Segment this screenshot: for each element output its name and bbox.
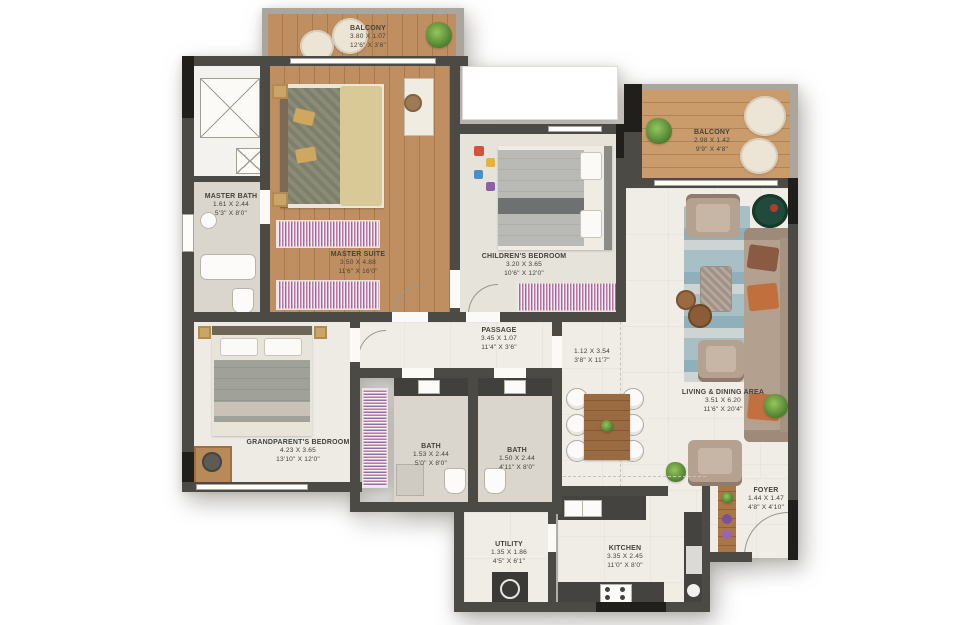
wall	[702, 486, 710, 612]
wall	[182, 56, 194, 492]
room-label-balcony-top-right: BALCONY 2.98 X 1.42 9'9" X 4'8"	[664, 128, 760, 155]
room-dim-imperial: 11'6" X 16'0"	[298, 268, 418, 277]
dining-table	[584, 394, 630, 460]
room-name: MASTER BATH	[196, 192, 266, 201]
toy	[486, 158, 495, 167]
bed-headboard	[212, 326, 312, 335]
room-dim-imperial: 5'0" X 8'0"	[396, 460, 466, 469]
parapet-wall	[790, 84, 798, 182]
room-dim-imperial: 13'10" X 12'0"	[228, 456, 368, 465]
room-dim-metric: 3.50 X 4.88	[298, 259, 418, 268]
side-table	[752, 194, 788, 228]
wall	[450, 124, 634, 134]
room-label-master-bath: MASTER BATH 1.61 X 2.44 5'3" X 8'0"	[196, 192, 266, 219]
prep-sink	[687, 584, 700, 597]
room-label-foyer: FOYER 1.44 X 1.47 4'8" X 4'10"	[736, 486, 796, 513]
wall	[358, 368, 556, 378]
room-name: BATH	[482, 446, 552, 455]
bed-throw	[214, 402, 310, 416]
room-dim-metric: 4.23 X 3.65	[228, 447, 368, 456]
room-dim-imperial: 11'4" X 3'6"	[450, 344, 548, 353]
bath-sink	[418, 380, 440, 394]
table-centerpiece	[601, 420, 613, 432]
flower-decor	[722, 514, 732, 524]
wardrobe	[516, 282, 618, 312]
bathtub	[200, 254, 256, 280]
room-dim-metric: 1.35 X 1.86	[466, 549, 552, 558]
room-name: FOYER	[736, 486, 796, 495]
room-name: KITCHEN	[578, 544, 672, 553]
wardrobe	[276, 220, 380, 248]
washing-machine	[492, 572, 528, 606]
room-dim-metric: 3.80 X 1.07	[318, 33, 418, 42]
room-name: LIVING & DINING AREA	[656, 388, 790, 397]
kitchen-sink	[564, 500, 602, 517]
room-dim-metric: 1.53 X 2.44	[396, 451, 466, 460]
room-dim-imperial: 10'6" X 12'0"	[464, 270, 584, 279]
room-dim-imperial: 9'9" X 4'8"	[664, 146, 760, 155]
room-dim-metric: 1.44 X 1.47	[736, 495, 796, 504]
armchair-seat	[696, 204, 730, 232]
door-opening	[392, 312, 428, 322]
nightstand	[272, 84, 288, 99]
sink-divider	[582, 500, 583, 517]
bath-sink	[504, 380, 526, 394]
room-dim-imperial: 4'11" X 8'0"	[482, 464, 552, 473]
coffee-table	[688, 304, 712, 328]
plant-icon	[666, 462, 686, 482]
room-dim-imperial: 3'8" X 11'7"	[556, 357, 628, 366]
foyer-console	[718, 486, 736, 554]
room-dim-metric: 3.45 X 1.07	[450, 335, 548, 344]
bed-pillow	[580, 152, 602, 180]
bed-pillow	[580, 210, 602, 238]
toilet	[232, 288, 254, 314]
room-label-corridor: 1.12 X 3.54 3'8" X 11'7"	[556, 348, 628, 365]
flower-decor	[722, 530, 732, 539]
wall	[468, 378, 478, 504]
room-name: CHILDREN'S BEDROOM	[464, 252, 584, 261]
armchair-seat	[706, 346, 736, 372]
desk-chair	[404, 94, 422, 112]
floorplan: BALCONY 3.80 X 1.07 12'6" X 3'6" MASTER …	[0, 0, 957, 625]
burner	[620, 595, 625, 600]
room-label-bath-2: BATH 1.50 X 2.44 4'11" X 8'0"	[482, 446, 552, 473]
armchair-seat	[698, 448, 732, 474]
room-name: UTILITY	[466, 540, 552, 549]
sliding-door	[654, 180, 778, 186]
window	[182, 214, 194, 252]
service-duct	[462, 66, 618, 120]
master-bed	[280, 84, 384, 208]
wall-column	[182, 56, 194, 118]
sofa-pillow	[747, 283, 780, 312]
parapet-wall	[638, 84, 796, 90]
room-name: GRANDPARENT'S BEDROOM	[228, 438, 368, 447]
door-opening	[466, 312, 500, 322]
room-dim-metric: 1.50 X 2.44	[482, 455, 552, 464]
room-name: BALCONY	[318, 24, 418, 33]
room-dim-imperial: 4'8" X 4'10"	[736, 504, 796, 513]
closet-box	[200, 78, 260, 138]
room-dim-imperial: 11'0" X 8'0"	[578, 562, 672, 571]
door-opening	[350, 328, 360, 362]
wall	[556, 486, 668, 496]
room-label-balcony-top-left: BALCONY 3.80 X 1.07 12'6" X 3'6"	[318, 24, 418, 51]
room-dim-metric: 1.61 X 2.44	[196, 201, 266, 210]
room-label-utility: UTILITY 1.35 X 1.86 4'5" X 6'1"	[466, 540, 552, 567]
door-opening	[450, 270, 460, 308]
childrens-bed	[498, 146, 612, 250]
room-dim-imperial: 11'6" X 20'4"	[656, 406, 790, 415]
washing-machine-door	[500, 579, 520, 599]
room-name: BALCONY	[664, 128, 760, 137]
room-dim-imperial: 5'3" X 8'0"	[196, 210, 266, 219]
nightstand	[198, 326, 211, 339]
plant-icon	[722, 492, 733, 503]
burner	[620, 587, 625, 592]
fridge	[686, 546, 702, 574]
room-label-kitchen: KITCHEN 3.35 X 2.45 11'0" X 8'0"	[578, 544, 672, 571]
room-label-bath-1: BATH 1.53 X 2.44 5'0" X 8'0"	[396, 442, 466, 469]
stool	[202, 452, 222, 472]
wall	[702, 552, 752, 562]
nightstand	[314, 326, 327, 339]
room-dim-metric: 3.35 X 2.45	[578, 553, 672, 562]
bed-pillow	[264, 338, 302, 356]
window	[548, 126, 602, 132]
room-dim-metric: 2.98 X 1.42	[664, 137, 760, 146]
wall	[194, 176, 268, 182]
sliding-door	[290, 58, 436, 64]
sofa-pillow	[746, 244, 779, 272]
room-label-childrens-bedroom: CHILDREN'S BEDROOM 3.20 X 3.65 10'6" X 1…	[464, 252, 584, 279]
door-opening	[494, 368, 526, 378]
bed-throw	[498, 198, 584, 214]
wall	[454, 602, 710, 612]
bed-blanket	[288, 88, 342, 204]
shower	[396, 464, 424, 496]
room-dim-imperial: 12'6" X 3'6"	[318, 42, 418, 51]
wall-column	[596, 602, 666, 612]
armchair	[698, 340, 744, 382]
armchair	[688, 440, 742, 486]
zone-divider	[558, 476, 706, 477]
bed-headboard	[280, 84, 288, 208]
armchair	[686, 194, 740, 238]
room-label-master-suite: MASTER SUITE 3.50 X 4.88 11'6" X 16'0"	[298, 250, 418, 277]
side-table-decor	[770, 204, 778, 212]
toy	[474, 146, 484, 156]
room-dim-imperial: 4'5" X 6'1"	[466, 558, 552, 567]
bed-pillow	[220, 338, 258, 356]
parapet-wall	[262, 8, 462, 14]
toy	[486, 182, 495, 191]
kitchen-tall-unit	[684, 512, 704, 604]
wall	[260, 56, 270, 322]
room-name: MASTER SUITE	[298, 250, 418, 259]
toilet	[444, 468, 466, 494]
bed-headboard	[604, 146, 612, 250]
stove	[600, 584, 632, 603]
room-name: BATH	[396, 442, 466, 451]
plant-icon	[426, 22, 452, 48]
room-dim-metric: 3.51 X 6.20	[656, 397, 790, 406]
wall	[454, 502, 464, 612]
door-opening	[402, 368, 434, 378]
wardrobe	[276, 280, 380, 310]
floorplan-canvas: BALCONY 3.80 X 1.07 12'6" X 3'6" MASTER …	[0, 0, 957, 625]
wall-column	[788, 178, 798, 224]
burner	[605, 595, 610, 600]
window	[196, 484, 308, 490]
wall-column	[624, 84, 642, 132]
room-label-living-dining: LIVING & DINING AREA 3.51 X 6.20 11'6" X…	[656, 388, 790, 415]
room-name: PASSAGE	[450, 326, 548, 335]
room-label-grandparents-bedroom: GRANDPARENT'S BEDROOM 4.23 X 3.65 13'10"…	[228, 438, 368, 465]
toy	[474, 170, 483, 179]
room-dim-metric: 3.20 X 3.65	[464, 261, 584, 270]
nightstand	[272, 192, 288, 207]
burner	[605, 587, 610, 592]
grandparents-bed	[212, 326, 312, 436]
room-dim-metric: 1.12 X 3.54	[556, 348, 628, 357]
bed-duvet	[340, 86, 382, 206]
room-label-passage: PASSAGE 3.45 X 1.07 11'4" X 3'6"	[450, 326, 548, 353]
